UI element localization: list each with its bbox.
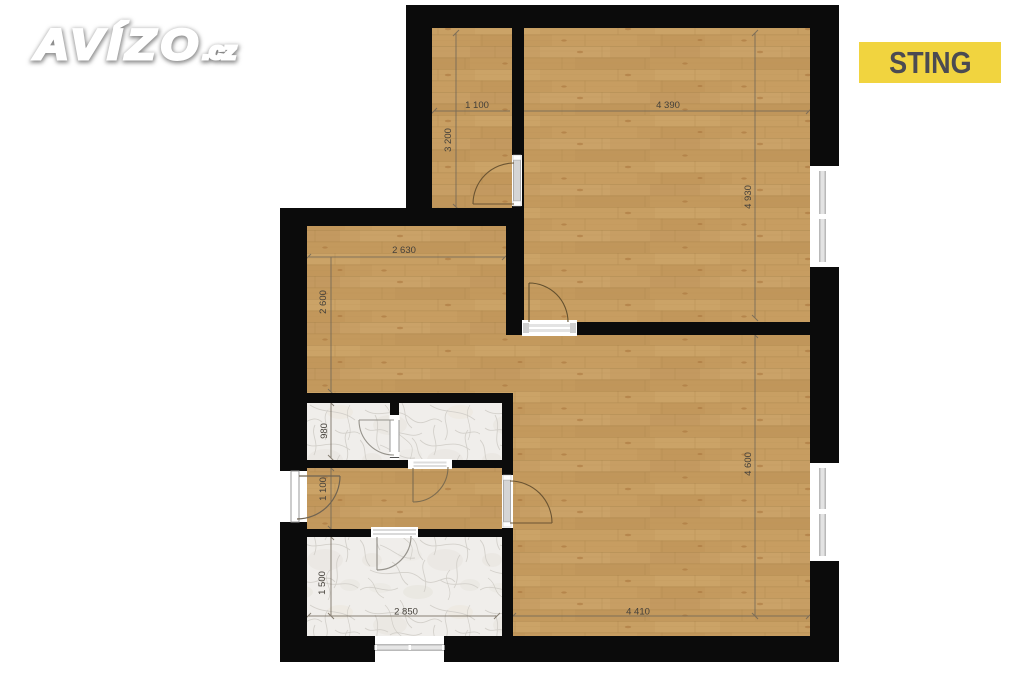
svg-text:3 200: 3 200: [443, 128, 454, 152]
svg-text:AVÍZO.cz: AVÍZO.cz: [33, 20, 237, 68]
svg-text:1 100: 1 100: [318, 477, 329, 501]
svg-text:1 500: 1 500: [317, 571, 328, 595]
svg-text:4 390: 4 390: [656, 100, 680, 111]
svg-text:2 850: 2 850: [394, 607, 418, 618]
svg-text:2 630: 2 630: [392, 245, 416, 256]
svg-text:4 410: 4 410: [626, 607, 650, 618]
svg-text:980: 980: [319, 423, 330, 439]
svg-text:4 930: 4 930: [743, 185, 754, 209]
svg-text:2 600: 2 600: [318, 290, 329, 314]
svg-text:4 600: 4 600: [743, 452, 754, 476]
svg-text:1 100: 1 100: [465, 100, 489, 111]
